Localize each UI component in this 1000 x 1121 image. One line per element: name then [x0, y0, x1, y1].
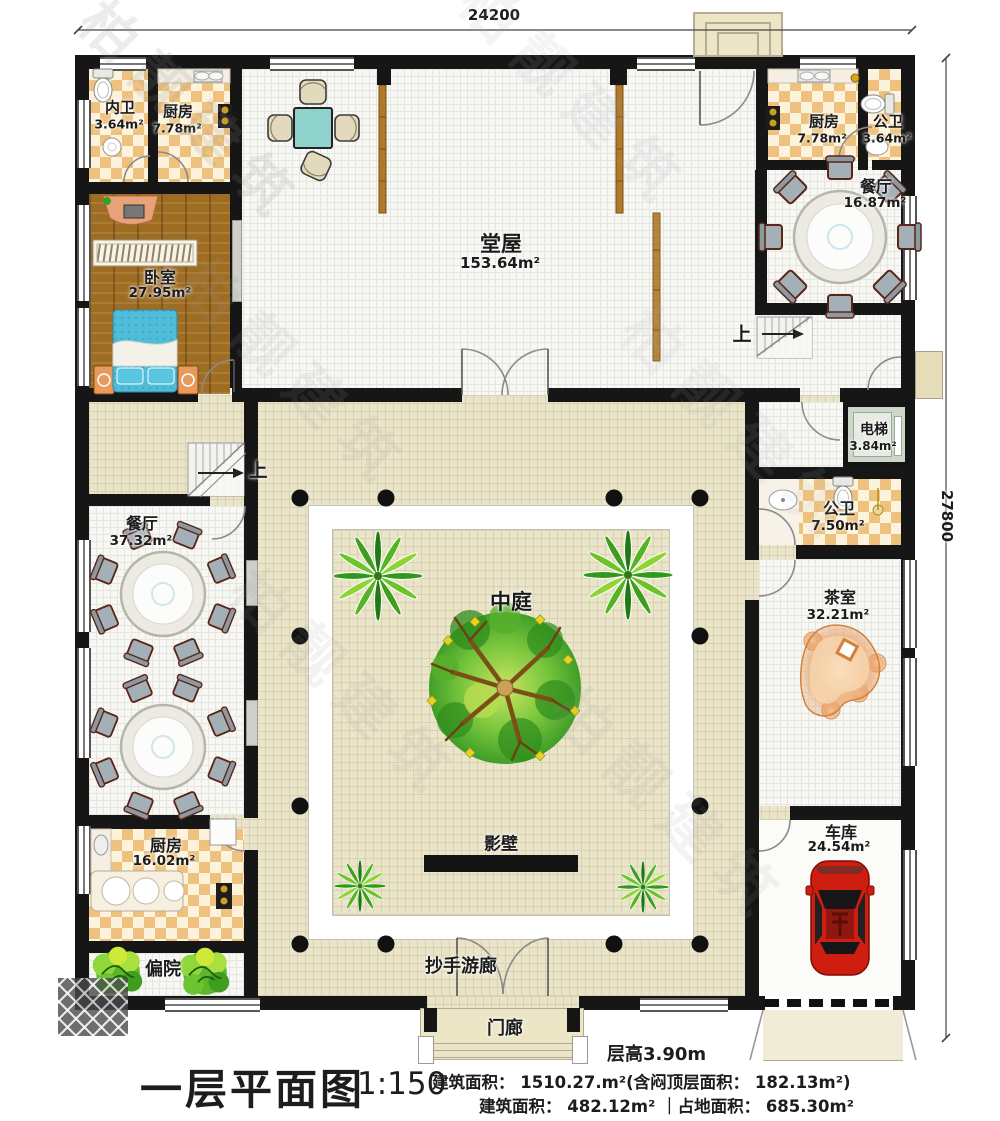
dimension-top: 24200 [468, 6, 520, 24]
room-area: 16.87m² [844, 195, 907, 211]
room-label: 中庭 [490, 586, 532, 616]
room-label: 门廊 [487, 1014, 523, 1040]
area-line2: 建筑面积： 482.12m² ｜占地面积： 685.30m² [479, 1093, 854, 1117]
wood-screen [377, 55, 660, 361]
palm-plant [334, 860, 386, 912]
dimension-right: 27800 [938, 490, 956, 542]
room-label: 餐厅 [860, 173, 892, 197]
courtyard-tree [427, 602, 581, 764]
room-area: 27.95m² [129, 285, 192, 301]
room-area: 37.32m² [110, 533, 173, 549]
room-label: 餐厅 [126, 510, 158, 534]
room-label: 厨房 [809, 111, 839, 132]
dining-set [759, 156, 921, 318]
room-label: 偏院 [145, 955, 181, 981]
palm-plant [583, 530, 673, 620]
room-area: 16.02m² [133, 853, 196, 869]
palm-plant [333, 531, 423, 621]
dining-set [90, 674, 237, 821]
room-area: 7.78m² [152, 121, 201, 136]
room-area: 7.50m² [811, 518, 864, 534]
car [806, 861, 874, 975]
room-label: 影壁 [484, 830, 518, 855]
watermark-logo [58, 978, 128, 1036]
stairs-up-label: 上 [248, 456, 267, 483]
room-area: 3.64m² [94, 117, 143, 132]
floor-height: 层高3.90m [607, 1040, 706, 1066]
room-area: 153.64m² [460, 254, 540, 272]
plan-title: 一层平面图 [140, 1056, 365, 1117]
room-area: 7.78m² [797, 131, 846, 146]
room-area: 24.54m² [808, 839, 871, 855]
room-label: 电梯 [860, 419, 888, 439]
room-area: 3.64m² [862, 131, 911, 146]
sideyard-bush [180, 948, 229, 995]
palm-plant [617, 861, 669, 913]
stairs-left [188, 443, 246, 497]
area-line1: 建筑面积： 1510.27.m²(含闷顶层面积： 182.13m²) [432, 1069, 851, 1093]
room-label: 茶室 [824, 584, 856, 608]
stairs-up-label: 上 [732, 320, 751, 347]
room-label: 内卫 [105, 97, 135, 118]
plan-graphics [0, 0, 1000, 1121]
floor-plan: 内卫 3.64m² 厨房 7.78m² 堂屋 153.64m² 厨房 7.78m… [0, 0, 1000, 1121]
tea-table-set [801, 625, 886, 719]
room-label: 公卫 [873, 111, 903, 132]
stairs-right [757, 317, 812, 358]
room-label: 公卫 [823, 495, 855, 519]
room-area: 3.84m² [849, 439, 896, 453]
room-label: 厨房 [163, 101, 193, 122]
room-label: 抄手游廊 [425, 952, 497, 978]
room-area: 32.21m² [807, 607, 870, 623]
hall-table-set [268, 80, 359, 182]
